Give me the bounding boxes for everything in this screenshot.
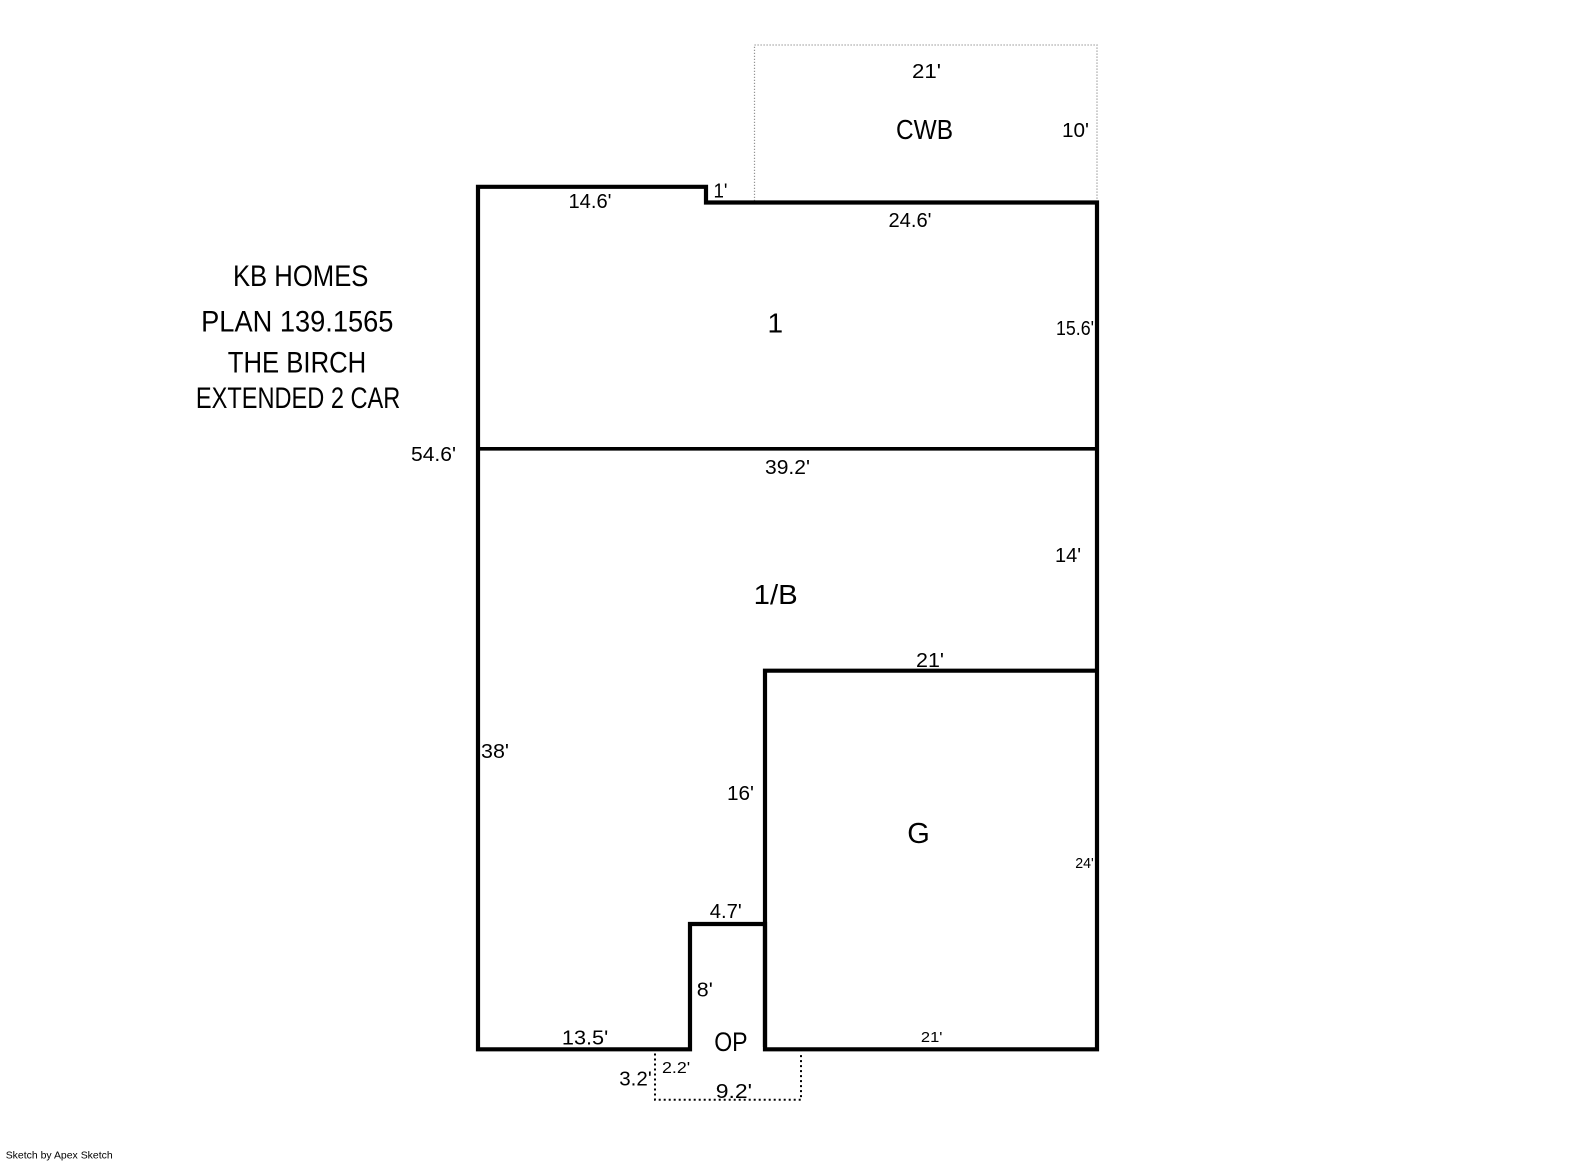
svg-text:24.6': 24.6' [889, 209, 932, 232]
svg-text:14': 14' [1055, 544, 1081, 567]
svg-text:38': 38' [481, 740, 509, 763]
svg-text:14.6': 14.6' [569, 190, 612, 213]
svg-text:4.7': 4.7' [710, 900, 742, 923]
svg-text:21': 21' [912, 60, 941, 83]
svg-text:21': 21' [921, 1029, 943, 1046]
svg-text:15.6': 15.6' [1056, 317, 1094, 340]
svg-text:2.2': 2.2' [662, 1060, 690, 1077]
svg-text:KB HOMES: KB HOMES [233, 260, 369, 293]
svg-text:13.5': 13.5' [562, 1026, 608, 1049]
svg-text:54.6': 54.6' [411, 443, 456, 466]
svg-text:OP: OP [714, 1027, 747, 1057]
svg-text:8': 8' [697, 979, 713, 1002]
svg-text:3.2': 3.2' [619, 1068, 652, 1091]
svg-text:CWB: CWB [896, 114, 953, 145]
svg-text:39.2': 39.2' [765, 456, 810, 479]
svg-text:EXTENDED 2 CAR: EXTENDED 2 CAR [196, 382, 400, 415]
svg-text:21': 21' [916, 649, 944, 672]
svg-text:10': 10' [1062, 119, 1089, 142]
svg-text:16': 16' [727, 782, 754, 805]
svg-text:THE BIRCH: THE BIRCH [228, 346, 367, 379]
svg-text:1/B: 1/B [754, 579, 798, 610]
svg-text:G: G [907, 818, 930, 850]
svg-text:Sketch by Apex Sketch: Sketch by Apex Sketch [6, 1150, 113, 1162]
svg-text:9.2': 9.2' [716, 1080, 752, 1103]
svg-text:24': 24' [1075, 856, 1094, 872]
svg-text:1': 1' [714, 180, 728, 203]
svg-text:PLAN 139.1565: PLAN 139.1565 [201, 306, 393, 339]
svg-text:1: 1 [768, 307, 784, 338]
